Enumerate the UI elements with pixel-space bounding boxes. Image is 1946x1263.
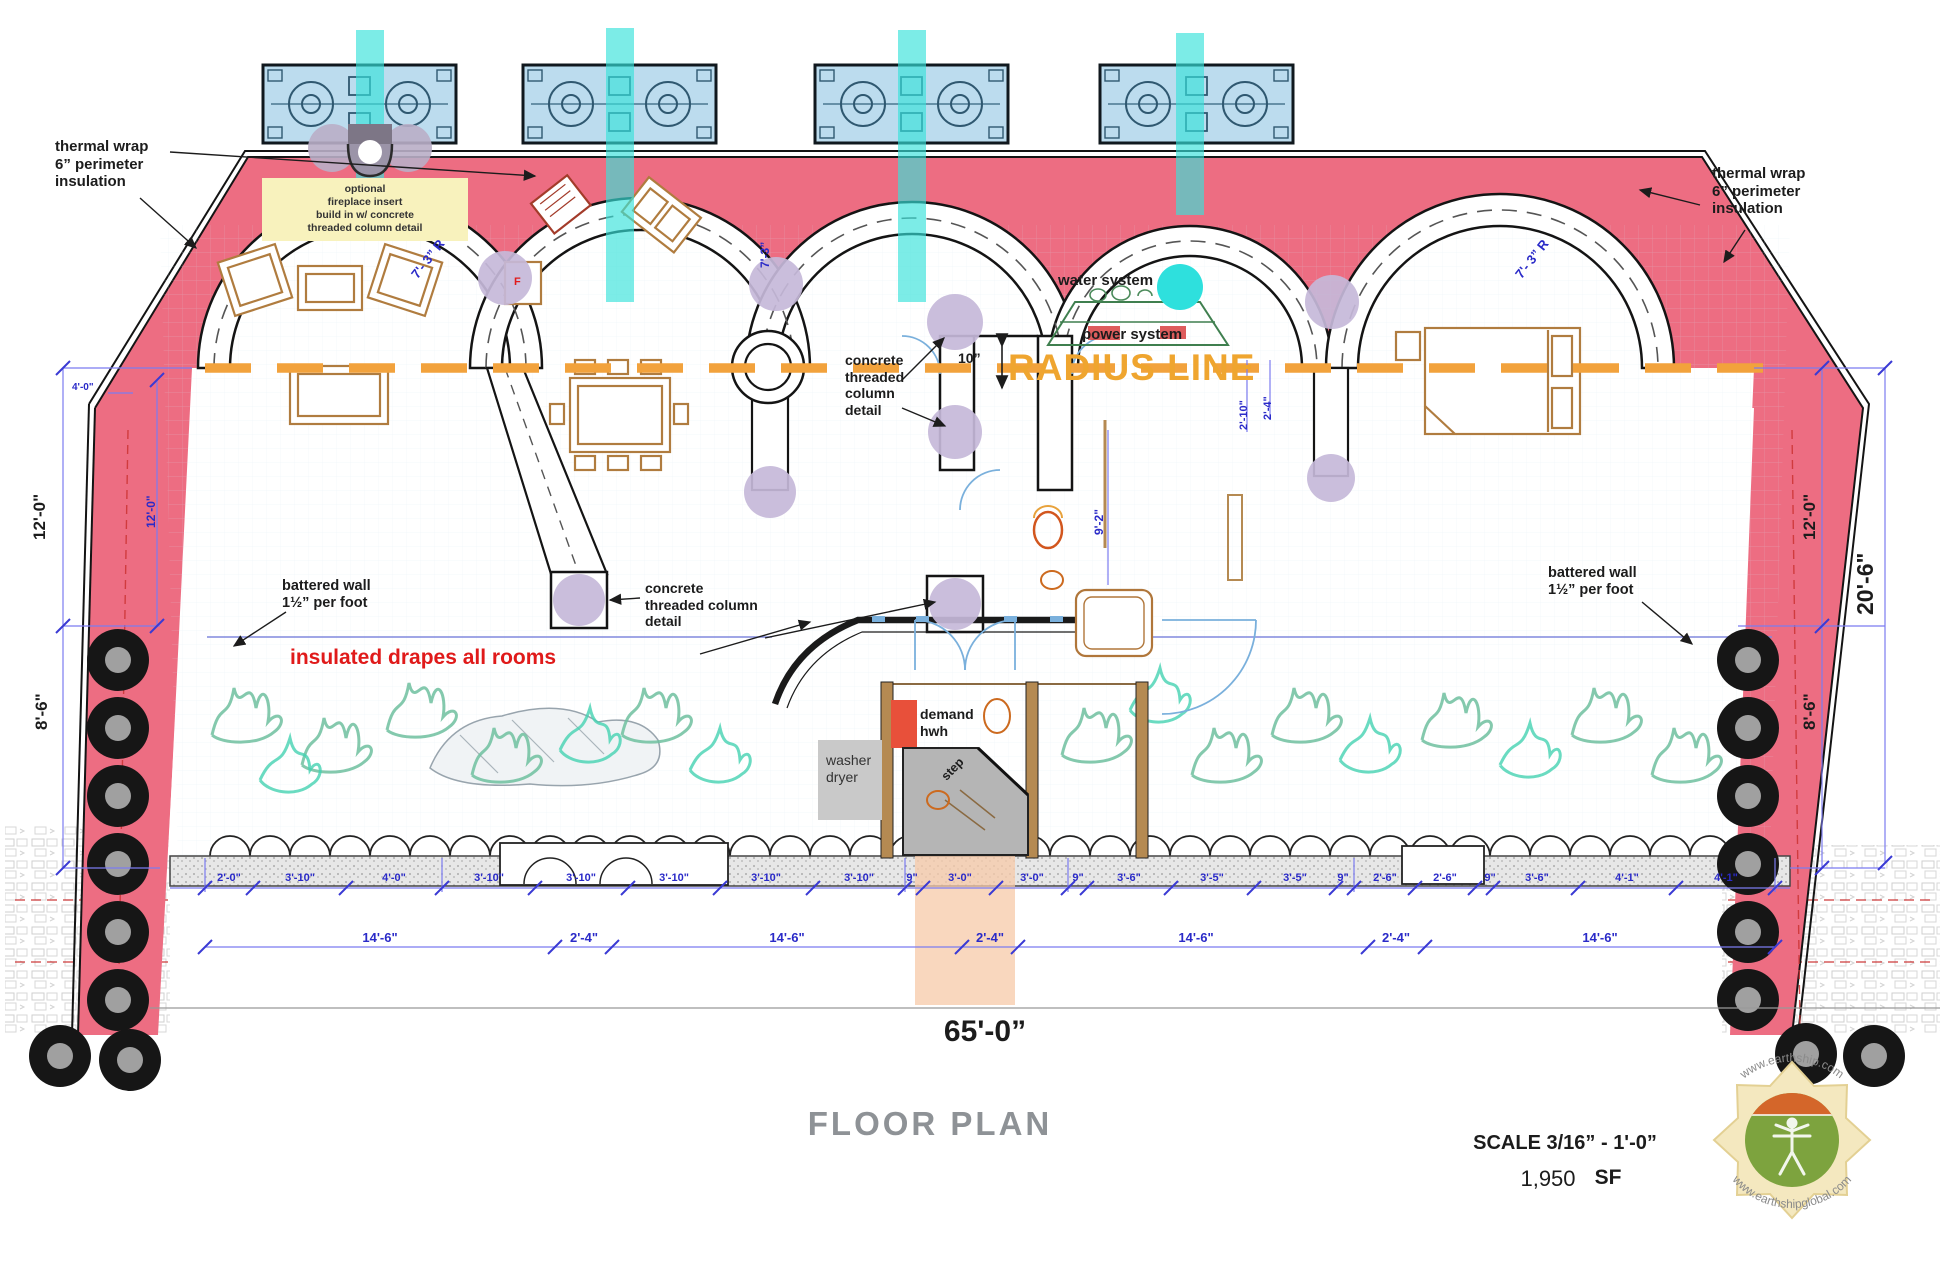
right-dim-12: 12'-0" [1800,494,1820,540]
demand-hwh-box [891,700,917,748]
water-system-dot [1157,264,1203,310]
dim-r1-19: 3'-6" [1525,872,1549,884]
concrete-column-label-left: concrete threaded column detail [645,580,758,630]
hall-lower-dim: 2'-4" [1262,396,1275,420]
left-dim-4: 4'-0" [72,382,94,394]
dim-r1-20: 4'-1" [1615,872,1639,884]
left-dim-12: 12'-0" [30,494,50,540]
area-unit: SF [1595,1166,1622,1191]
dim-r2-4: 14'-6" [1178,930,1213,945]
right-dim-8-6: 8'-6" [1800,693,1820,730]
center-room-dim: 9'-2" [1092,509,1106,535]
dim-r1-17: 2'-6" [1433,872,1457,884]
fridge-label: F [514,276,521,289]
dim-r1-13: 3'-5" [1200,872,1224,884]
dim-r2-0: 14'-6" [362,930,397,945]
dim-r1-14: 3'-5" [1283,872,1307,884]
radius-line-label: RADIUS LINE [1008,346,1255,390]
right-dim-20-6: 20'-6" [1852,553,1879,615]
dim-r1-0: 2'-0" [217,872,241,884]
dim-r1-4: 3'-10" [566,872,596,884]
dim-r1-8: 9" [906,872,917,884]
washer-dryer-label: washer dryer [826,752,871,785]
dim-r1-15: 9" [1337,872,1348,884]
dim-r1-11: 9" [1072,872,1083,884]
fireplace-note: optional fireplace insert build in w/ co… [262,178,468,241]
dim-r1-21: 4'-1" [1714,872,1738,884]
power-system-label: power system [1082,326,1182,344]
dim-r1-12: 3'-6" [1117,872,1141,884]
hall-upper-dim: 2'-10" [1238,400,1251,430]
overall-width-dim: 65'-0” [944,1014,1026,1049]
demand-hwh-label: demand hwh [920,706,974,739]
thermal-wrap-label-left: thermal wrap 6” perimeter insulation [55,138,148,191]
dim-r1-9: 3'-0" [948,872,972,884]
insulated-drapes-label: insulated drapes all rooms [290,646,556,671]
area-value: 1,950 [1520,1166,1575,1192]
water-system-label: water system [1058,272,1153,290]
left-dim-8-6: 8'-6" [32,693,52,730]
dim-r1-1: 3'-10" [285,872,315,884]
ten-inch-dim: 10” [958,350,981,367]
left-dim-12-inner: 12'-0" [144,495,158,528]
dim-r1-16: 2'-6" [1373,872,1397,884]
dim-r1-6: 3'-10" [751,872,781,884]
dim-r1-5: 3'-10" [659,872,689,884]
radius-dim-arch2: 7'-3” [758,242,772,268]
floor-plan-page: www.earthship.com www.earthshipglobal.co… [0,0,1946,1263]
dim-r2-2: 14'-6" [769,930,804,945]
dim-r2-6: 14'-6" [1582,930,1617,945]
dim-r2-5: 2'-4" [1382,930,1410,945]
dim-r2-1: 2'-4" [570,930,598,945]
dim-r1-2: 4'-0" [382,872,406,884]
dim-r1-7: 3'-10" [844,872,874,884]
earthship-logo: www.earthship.com www.earthshipglobal.co… [1714,1051,1870,1218]
dim-r1-3: 3'-10" [474,872,504,884]
dim-r2-3: 2'-4" [976,930,1004,945]
battered-wall-label-right: battered wall 1½” per foot [1548,565,1637,599]
drawing-title: FLOOR PLAN [808,1105,1052,1144]
thermal-wrap-label-right: thermal wrap 6” perimeter insulation [1712,165,1805,218]
battered-wall-label-left: battered wall 1½” per foot [282,578,371,612]
dim-r1-10: 3'-0" [1020,872,1044,884]
scale-label: SCALE 3/16” - 1'-0” [1473,1132,1657,1156]
dim-r1-18: 9" [1484,872,1495,884]
concrete-column-label-mid: concrete threaded column detail [845,352,904,418]
